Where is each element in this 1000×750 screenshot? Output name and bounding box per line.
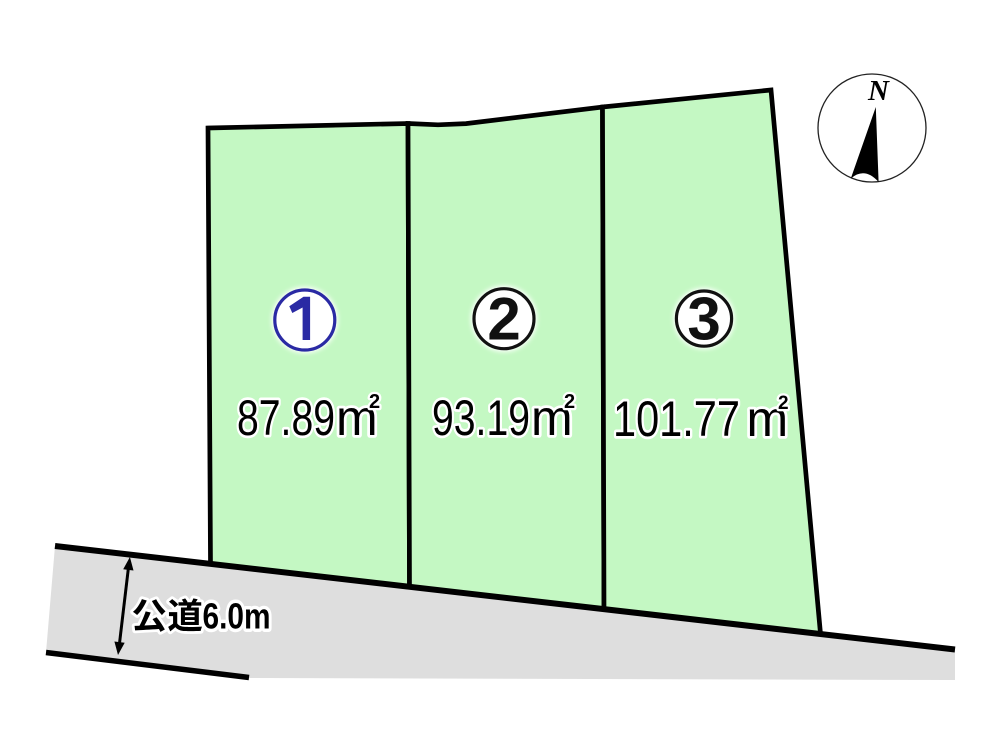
svg-text:101.77: 101.77: [613, 391, 740, 447]
svg-text:2: 2: [487, 286, 520, 353]
svg-text:3: 3: [687, 286, 720, 353]
svg-text:N: N: [867, 75, 890, 107]
svg-text:6.0m: 6.0m: [203, 595, 271, 636]
svg-text:87.89: 87.89: [237, 390, 335, 446]
svg-text:2: 2: [564, 391, 575, 413]
svg-text:93.19: 93.19: [432, 390, 530, 446]
svg-text:2: 2: [369, 391, 380, 413]
svg-text:2: 2: [778, 393, 789, 414]
